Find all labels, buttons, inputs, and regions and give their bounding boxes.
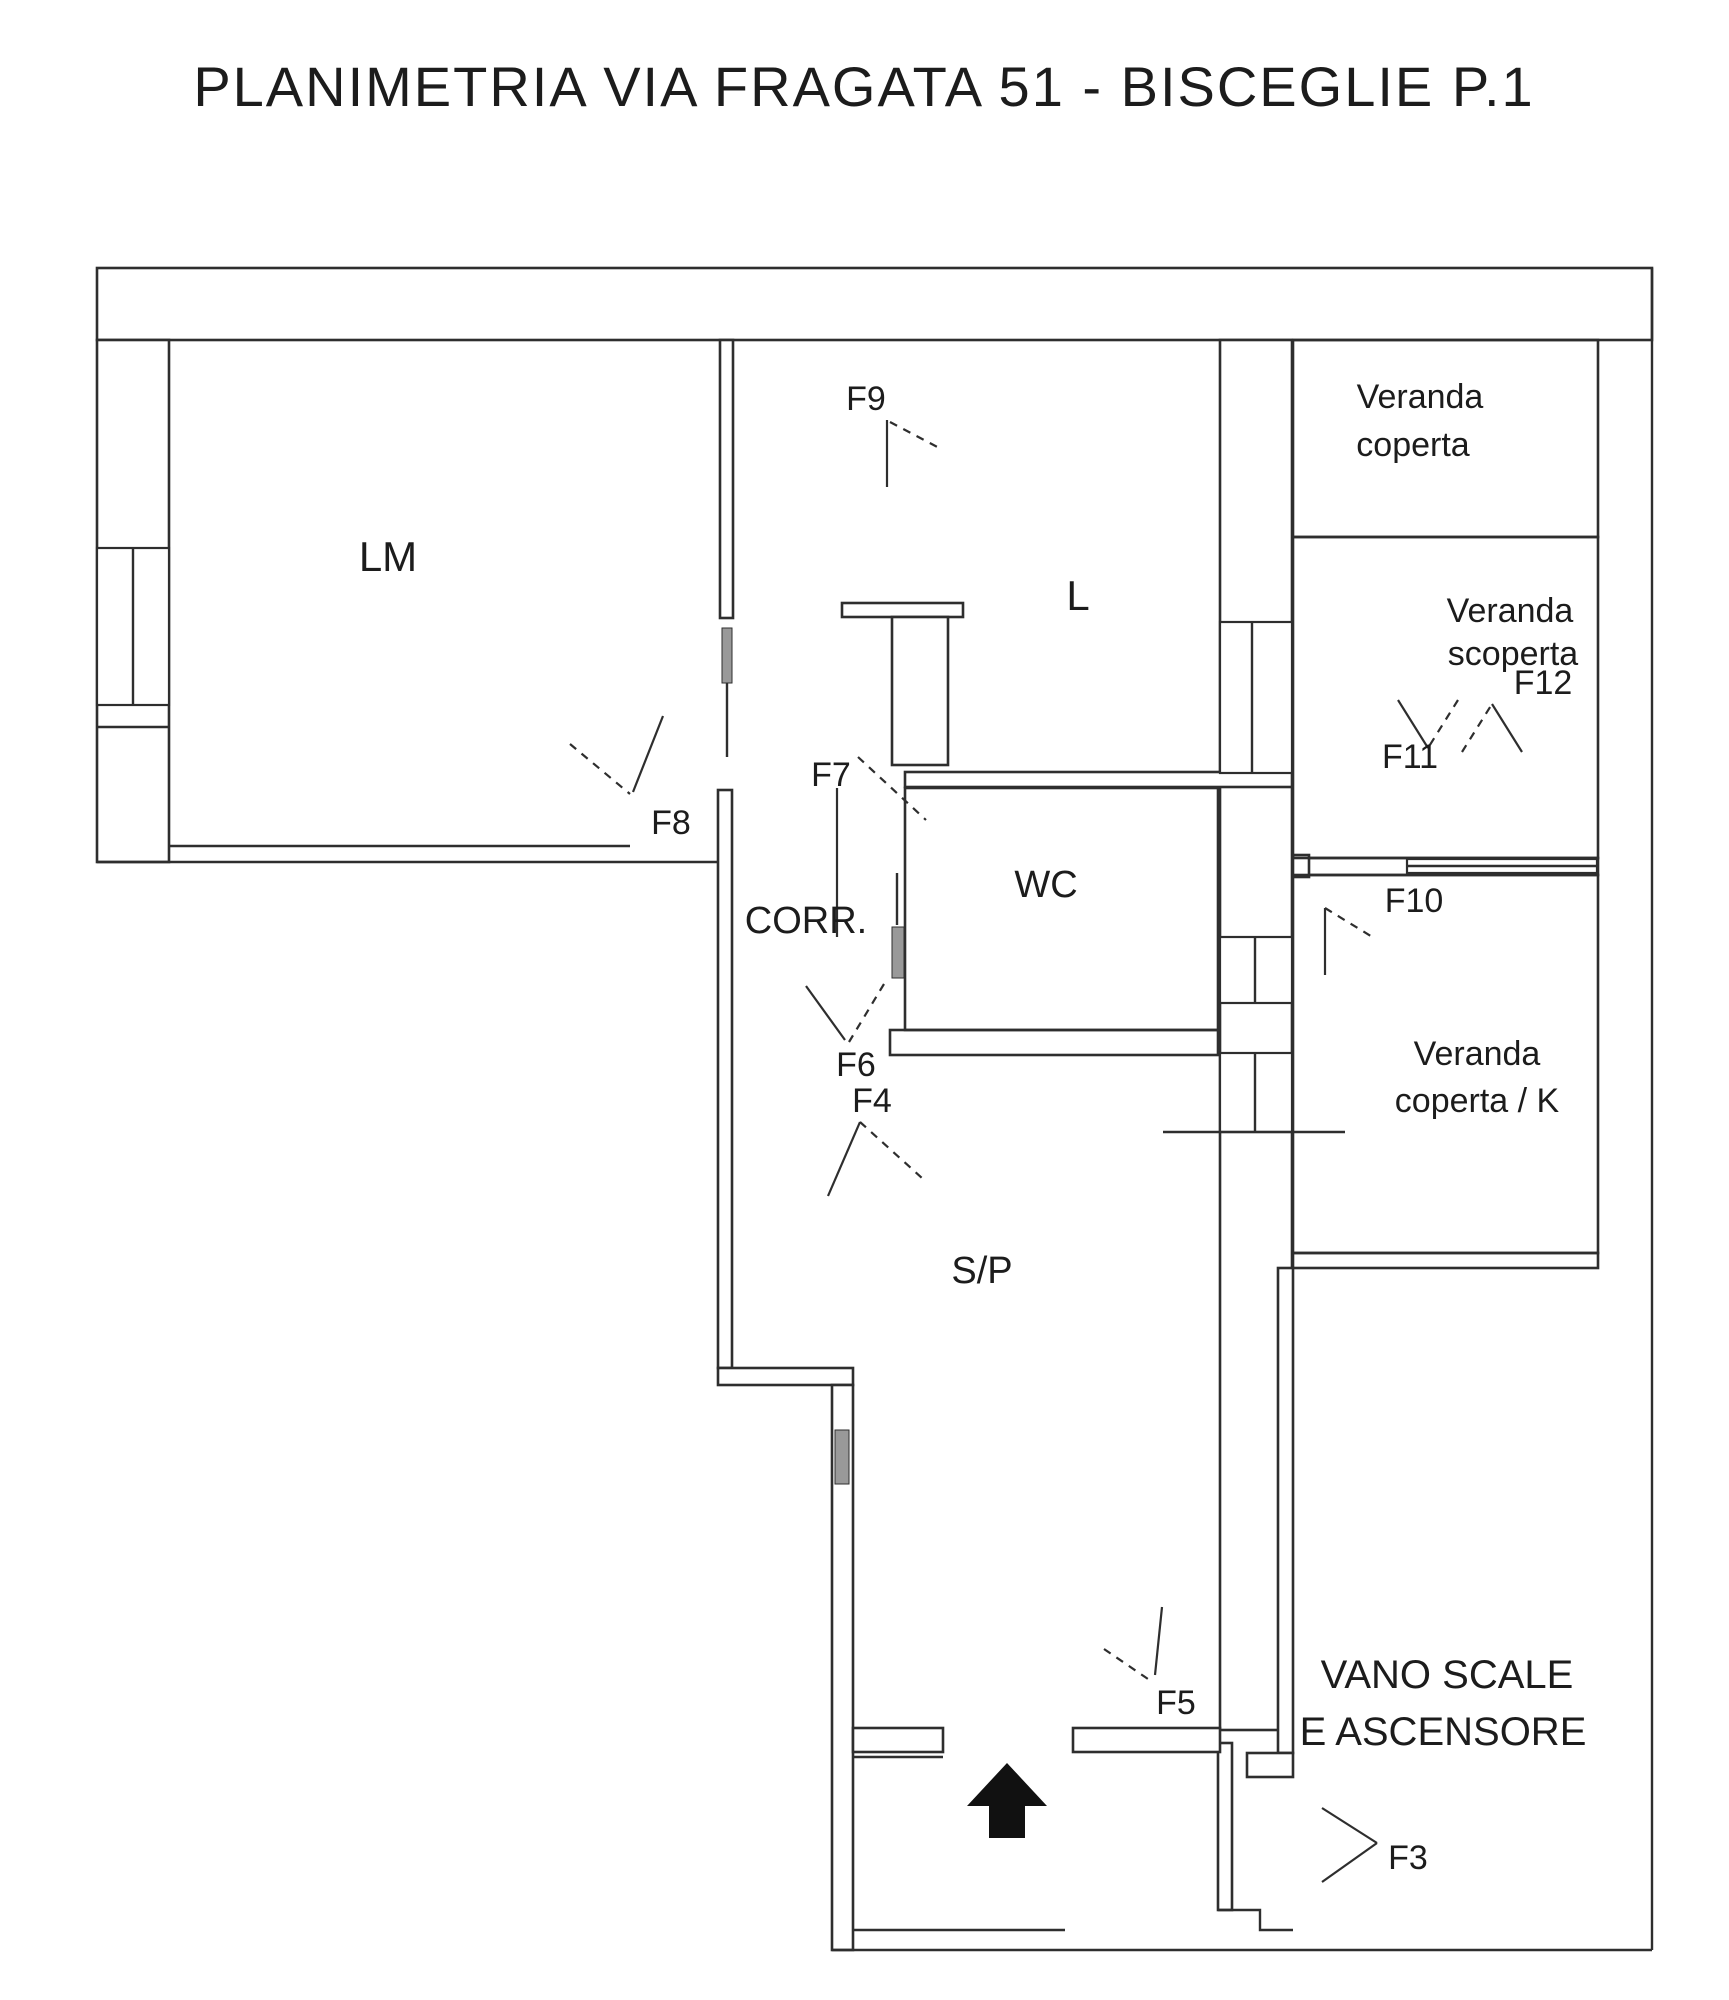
door-swing-dashed: [570, 744, 630, 794]
room-label-vano-scale-1: VANO SCALE: [1321, 1653, 1574, 1697]
window-label-f9: F9: [846, 380, 886, 418]
wall-lm-l-divider: [720, 340, 733, 618]
window-label-f8: F8: [651, 804, 691, 842]
wall-wc-bottom: [890, 1030, 1218, 1055]
window-label-f3: F3: [1388, 1839, 1428, 1877]
window-label-f11: F11: [1382, 738, 1438, 776]
room-label-corridor: CORR.: [745, 900, 867, 942]
room-label-vano-scale-2: E ASCENSORE: [1300, 1710, 1587, 1754]
entrance-arrow-stem: [989, 1806, 1025, 1838]
door-swing-dashed: [1104, 1649, 1148, 1679]
room-label-veranda-k-2: coperta / K: [1395, 1082, 1560, 1120]
wall-top: [97, 268, 1652, 340]
window-label-f5: F5: [1156, 1684, 1196, 1722]
wall-step: [1218, 1910, 1293, 1930]
room-label-veranda-scoperta-1: Veranda: [1447, 592, 1574, 630]
wall-jog: [718, 1368, 853, 1385]
door-swing: [1155, 1607, 1162, 1675]
room-label-wc: WC: [1014, 864, 1077, 906]
room-label-veranda-coperta-2: coperta: [1356, 426, 1469, 464]
floor-plan-page: PLANIMETRIA VIA FRAGATA 51 - BISCEGLIE P…: [0, 0, 1729, 2000]
room-label-lm: LM: [359, 533, 417, 580]
window-label-f10: F10: [1385, 882, 1444, 920]
door-leaf-wc: [892, 927, 904, 978]
wall-corridor-left: [718, 790, 732, 1368]
room-label-veranda-k-1: Veranda: [1414, 1035, 1541, 1073]
door-swing: [1322, 1808, 1377, 1843]
room-wc-outline: [905, 788, 1218, 1030]
wall-stairs-left: [1278, 1268, 1293, 1753]
page-title: PLANIMETRIA VIA FRAGATA 51 - BISCEGLIE P…: [193, 55, 1534, 118]
window-label-f6: F6: [836, 1046, 876, 1084]
wall-l-bottom: [905, 772, 1292, 787]
wall-sp-bottom-right: [1073, 1728, 1220, 1752]
labels-layer: LMLCORR.WCS/PVerandacopertaVerandascoper…: [359, 378, 1587, 1877]
room-label-sp: S/P: [951, 1250, 1012, 1292]
door-swing-dashed: [1462, 704, 1492, 752]
room-label-veranda-coperta-1: Veranda: [1357, 378, 1484, 416]
window-bar-sp-left: [835, 1430, 849, 1484]
door-swing: [1322, 1843, 1377, 1882]
wall-shaft-box: [892, 617, 948, 765]
wall-stairs-stub: [1247, 1753, 1293, 1777]
wall-sp-bottom-left: [853, 1728, 943, 1752]
door-swing-dashed: [860, 1122, 922, 1178]
entrance-arrow-head: [967, 1763, 1047, 1806]
door-swing: [633, 716, 663, 792]
window-l-scoperta: [1220, 622, 1292, 773]
room-label-l: L: [1066, 572, 1089, 619]
window-label-f7: F7: [811, 756, 851, 794]
door-swing-dashed: [1325, 908, 1374, 938]
door-swing-dashed: [890, 422, 943, 450]
wall-k-bottom: [1293, 1253, 1598, 1268]
window-label-f12: F12: [1514, 664, 1573, 702]
floor-plan-drawing: PLANIMETRIA VIA FRAGATA 51 - BISCEGLIE P…: [0, 0, 1729, 2000]
wall-vestibule-right: [1218, 1743, 1232, 1910]
door-swing: [828, 1122, 860, 1196]
wall-shaft-top: [842, 603, 963, 617]
door-swing: [1492, 704, 1522, 752]
door-swing-dashed: [849, 984, 884, 1042]
window-label-f4: F4: [852, 1082, 892, 1120]
door-leaf-lm: [722, 628, 732, 683]
door-swing: [806, 986, 845, 1040]
